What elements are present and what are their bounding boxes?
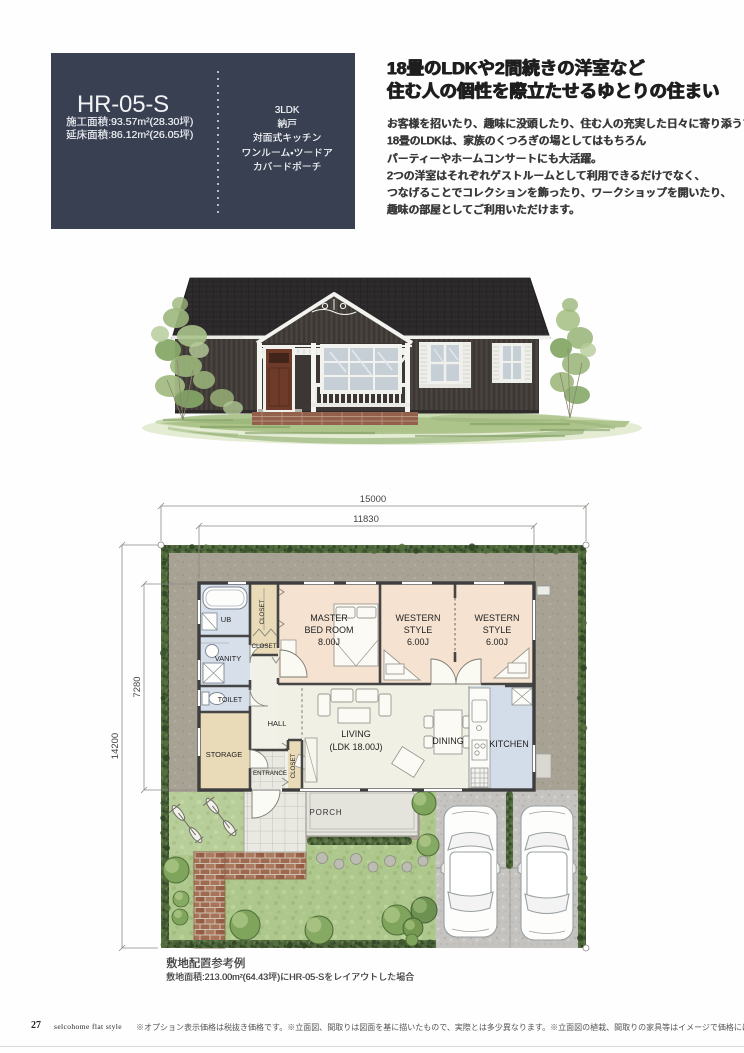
svg-text:WESTERN: WESTERN (396, 613, 441, 623)
svg-text:PORCH: PORCH (310, 808, 343, 817)
svg-text:7280: 7280 (132, 676, 143, 697)
svg-text:6.00J: 6.00J (486, 637, 508, 647)
svg-text:14200: 14200 (110, 733, 121, 759)
svg-text:STORAGE: STORAGE (206, 750, 243, 759)
svg-text:15000: 15000 (360, 494, 386, 505)
svg-text:CLOSET: CLOSET (252, 643, 277, 650)
svg-text:ENTRANCE: ENTRANCE (253, 770, 287, 777)
svg-text:11830: 11830 (353, 514, 379, 525)
svg-text:(LDK 18.00J): (LDK 18.00J) (329, 742, 382, 752)
svg-text:KITCHEN: KITCHEN (489, 739, 529, 749)
svg-text:UB: UB (221, 615, 231, 624)
svg-text:CLOSET: CLOSET (259, 599, 266, 624)
svg-text:TOILET: TOILET (218, 697, 243, 704)
svg-text:HALL: HALL (268, 719, 287, 728)
svg-text:LIVING: LIVING (341, 729, 371, 739)
svg-text:STYLE: STYLE (483, 625, 512, 635)
svg-text:CLOSET: CLOSET (290, 753, 297, 778)
svg-text:DINING: DINING (432, 736, 464, 746)
svg-text:6.00J: 6.00J (407, 637, 429, 647)
svg-text:MASTER: MASTER (310, 613, 348, 623)
svg-text:WESTERN: WESTERN (475, 613, 520, 623)
svg-text:8.00J: 8.00J (318, 637, 340, 647)
svg-text:BED ROOM: BED ROOM (304, 625, 353, 635)
svg-text:VANITY: VANITY (215, 654, 242, 663)
svg-text:STYLE: STYLE (404, 625, 433, 635)
